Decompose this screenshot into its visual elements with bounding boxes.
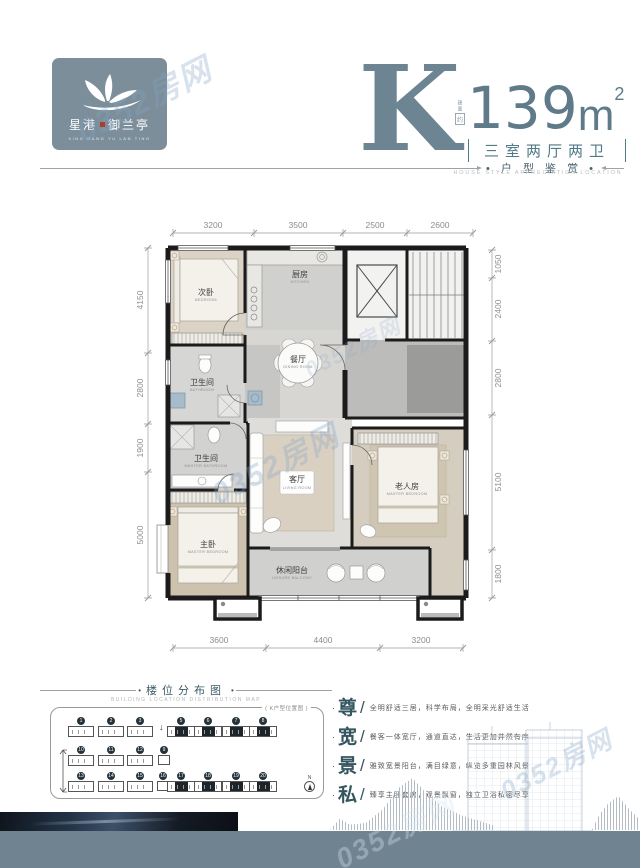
brand-name: 星港 御兰亭: [69, 116, 150, 133]
building-13: 13: [68, 781, 94, 792]
svg-text:MASTER BATHROOM: MASTER BATHROOM: [184, 464, 227, 468]
label-master: 主卧: [200, 539, 216, 549]
building-6: 6: [194, 726, 222, 737]
building-17: 17: [167, 781, 195, 792]
label-living: 客厅: [289, 474, 305, 484]
building-5: 5: [167, 726, 195, 737]
area-prefix: 建面 约: [455, 100, 465, 125]
svg-text:DINING ROOM: DINING ROOM: [283, 365, 312, 369]
dim-right-4: 5100: [493, 472, 503, 491]
entry-arrow-icon: ↓: [159, 722, 164, 732]
building-10: 10: [68, 755, 94, 766]
brand-name-left: 星港: [69, 116, 97, 133]
unit-type-letter: K: [358, 50, 461, 168]
section-title-en: HOUSE STYLE APPRECIATION LOCATION: [452, 170, 624, 176]
dim-right-5: 1800: [493, 564, 503, 583]
map-legend: ( K户型位置图 ): [262, 704, 311, 712]
dim-top-1: 3200: [204, 220, 223, 230]
area-prefix-text: 建面: [457, 100, 464, 112]
area-exponent: 2: [614, 85, 624, 103]
svg-text:LIVING ROOM: LIVING ROOM: [283, 486, 312, 490]
feature-zun: · 尊/ 全明舒适三居，科学布局，全明采光舒适生活: [332, 698, 632, 718]
label-bath1: 卫生间: [190, 377, 214, 387]
dim-top-2: 3500: [289, 220, 308, 230]
brand-dot: [100, 122, 105, 127]
label-kitchen: 厨房: [292, 269, 308, 279]
dim-right-3: 2800: [493, 368, 503, 387]
label-master-bath: 卫生间: [194, 453, 218, 463]
location-map-title-cn: 楼位分布图: [146, 682, 226, 698]
dim-left-4: 5000: [135, 525, 145, 544]
dim-bottom-3: 3200: [412, 635, 431, 645]
dim-bottom-1: 3600: [210, 635, 229, 645]
building-19: 19: [222, 781, 250, 792]
building-3: 3: [127, 726, 153, 737]
north-compass-icon: N: [304, 776, 315, 792]
brand-logo-card: 星港 御兰亭 XING GANG YU LAN TING: [52, 58, 167, 150]
label-dining: 餐厅: [290, 355, 306, 364]
location-map-title-en: BUILDING LOCATION DISTRIBUTION MAP: [40, 697, 332, 703]
building-8: 8: [249, 726, 277, 737]
unit-area: 建面 约 139 m 2: [455, 84, 624, 133]
building-9: 9: [158, 755, 170, 765]
svg-text:BATHROOM: BATHROOM: [190, 388, 214, 392]
night-photo-strip: [0, 812, 238, 831]
dim-left-1: 4150: [135, 290, 145, 309]
dim-left-3: 1900: [135, 438, 145, 457]
building-15: 15: [127, 781, 153, 792]
brand-name-right: 御兰亭: [108, 116, 150, 133]
svg-text:KITCHEN: KITCHEN: [291, 280, 310, 284]
tower-illustration: [452, 722, 594, 831]
label-bedroom2: 次卧: [198, 287, 214, 297]
floorplan-poster: 星港 御兰亭 XING GANG YU LAN TING K 建面 约 139 …: [0, 0, 640, 868]
brand-name-en: XING GANG YU LAN TING: [68, 136, 150, 141]
dim-right-2: 2400: [493, 299, 503, 318]
location-map-title: • 楼位分布图 •: [40, 682, 332, 698]
building-1: 1: [68, 726, 94, 737]
dim-top-4: 2600: [431, 220, 450, 230]
area-prefix-approx: 约: [455, 113, 465, 125]
building-7: 7: [222, 726, 250, 737]
building-20: 20: [249, 781, 277, 792]
svg-text:LEISURE BALCONY: LEISURE BALCONY: [272, 576, 312, 580]
svg-text:BEDROOM: BEDROOM: [195, 298, 217, 302]
svg-text:MASTER BEDROOM: MASTER BEDROOM: [188, 550, 229, 554]
building-14: 14: [98, 781, 124, 792]
building-18: 18: [194, 781, 222, 792]
location-map: ( K户型位置图 ) 1 2 3 ↓ 5 6 7 8 10 11 12 9 13…: [50, 707, 324, 799]
room-count-text: 三室两厅两卫: [468, 139, 626, 162]
building-11: 11: [98, 755, 124, 766]
building-12: 12: [127, 755, 153, 766]
label-elder: 老人房: [395, 481, 419, 491]
footer-band: [0, 831, 640, 868]
road-bracket-icon: [55, 744, 67, 798]
dim-left-2: 2800: [135, 378, 145, 397]
dim-bottom-2: 4400: [314, 635, 333, 645]
orchid-logo-icon: [75, 72, 145, 112]
area-unit: m: [578, 98, 615, 133]
svg-text:MASTER BEDROOM: MASTER BEDROOM: [387, 492, 428, 496]
floor-plan: 次卧 BEDROOM 卫生间 BATHROOM 厨房 KITCHEN 餐厅 DI…: [130, 195, 520, 660]
building-2: 2: [98, 726, 124, 737]
area-value: 139: [467, 84, 578, 133]
dim-right-1: 1050: [493, 254, 503, 273]
dim-top-3: 2500: [366, 220, 385, 230]
label-balcony: 休闲阳台: [276, 565, 308, 575]
